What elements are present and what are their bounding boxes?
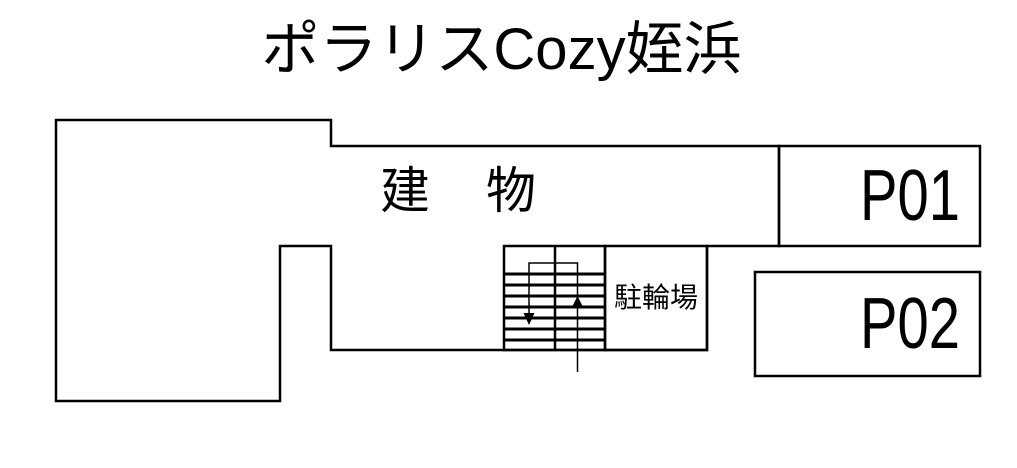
up-arrow-icon xyxy=(572,296,583,307)
parking-space-p01-label: P01 xyxy=(860,146,988,246)
stairs-treads xyxy=(504,274,605,340)
building-label: 建 物 xyxy=(380,166,539,216)
bicycle-parking-label: 駐輪場 xyxy=(605,246,707,350)
floor-plan-diagram: ポラリスCozy姪浜 建 物 P01 xyxy=(0,0,1017,468)
parking-space-p02-label: P02 xyxy=(860,272,988,376)
